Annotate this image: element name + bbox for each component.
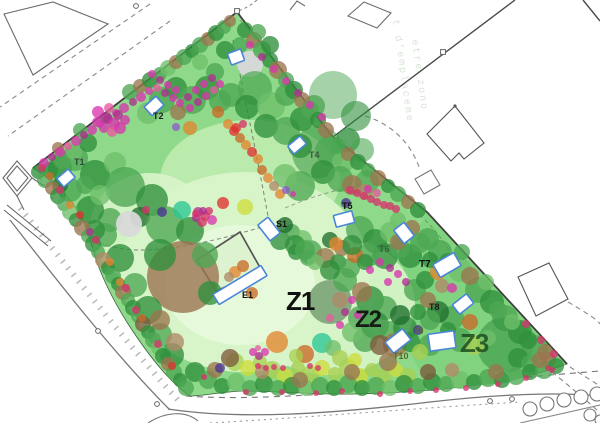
accent-dot	[38, 164, 46, 172]
accent-dot	[192, 210, 200, 218]
house-east-outline	[427, 106, 484, 161]
accent-dot	[210, 86, 218, 94]
accent-dot	[145, 87, 153, 95]
accent-dot	[394, 270, 402, 278]
tree-canopy	[192, 242, 218, 268]
shrub	[320, 260, 340, 280]
accent-dot	[326, 314, 334, 322]
shrub	[445, 363, 459, 377]
shrub	[90, 185, 110, 205]
shrub	[224, 272, 234, 282]
accent-dot	[306, 101, 314, 109]
accent-dot	[255, 345, 261, 351]
right-side-dashed	[568, 302, 600, 324]
accent-dot	[282, 186, 290, 194]
accent-dot	[313, 390, 319, 396]
accent-dot	[153, 84, 161, 92]
accent-dot	[104, 103, 114, 113]
accent-dot	[239, 120, 247, 128]
accent-dot	[549, 367, 555, 373]
tree-label-T1: T1	[74, 157, 85, 167]
accent-dot	[294, 89, 302, 97]
building-nw-outline	[4, 2, 108, 75]
accent-dot	[76, 211, 84, 219]
shrub	[212, 106, 224, 118]
accent-dot	[257, 165, 267, 175]
accent-dot	[200, 80, 208, 88]
accent-dot	[154, 340, 162, 348]
accent-dot	[66, 201, 74, 209]
accent-dot	[129, 98, 137, 106]
accent-dot	[55, 147, 65, 157]
accent-dot	[161, 89, 169, 97]
accent-dot	[263, 173, 273, 183]
accent-dot	[138, 314, 146, 322]
accent-dot	[169, 94, 177, 102]
accent-dot	[186, 104, 194, 112]
survey-node	[155, 402, 160, 407]
shrub	[221, 349, 239, 367]
tree-label-T9: T9	[413, 326, 424, 336]
accent-dot	[364, 185, 372, 193]
tree-label-E1: E1	[242, 290, 253, 300]
accent-dot	[360, 192, 368, 200]
shed-east-outline	[415, 170, 440, 194]
accent-dot	[366, 266, 374, 274]
accent-dot	[339, 388, 345, 394]
accent-dot	[282, 77, 290, 85]
tree-label-T10: T10	[393, 351, 409, 361]
accent-dot	[261, 348, 269, 356]
shrub	[166, 333, 184, 351]
zone-label-Z1: Z1	[286, 286, 315, 316]
accent-dot	[71, 136, 81, 146]
accent-dot	[142, 206, 150, 214]
accent-dot	[315, 365, 321, 371]
accent-dot	[172, 86, 180, 94]
shrub	[261, 36, 279, 54]
accent-dot	[201, 374, 207, 380]
road-se-dashed-1	[570, 367, 600, 386]
shrub	[329, 237, 343, 251]
road-west-double-2	[7, 205, 51, 241]
shrub	[488, 364, 504, 380]
accent-dot	[172, 123, 180, 131]
shrub	[390, 305, 410, 325]
house-right-outline	[518, 263, 568, 316]
accent-dot	[348, 296, 356, 304]
accent-dot	[132, 306, 140, 314]
accent-dot	[246, 41, 254, 49]
scan-watermark: t d'emplaceme etre zono	[389, 19, 429, 124]
shrub	[237, 260, 249, 272]
accent-dot	[92, 117, 102, 127]
landscape-plan-canvas: t d'emplaceme etre zono	[0, 0, 600, 423]
tree-label-T6: T6	[379, 244, 390, 254]
shrub	[435, 279, 449, 293]
accent-dot	[373, 198, 381, 206]
shrub	[412, 344, 428, 360]
shrub	[342, 235, 362, 255]
accent-dot	[270, 65, 278, 73]
tree-label-T2: T2	[153, 111, 164, 121]
accent-dot	[346, 186, 354, 194]
shrub	[237, 199, 253, 215]
tree-canopy	[144, 239, 176, 271]
accent-dot	[290, 191, 296, 197]
accent-dot	[495, 381, 501, 387]
tree-label-S1: S1	[276, 219, 287, 229]
shrub	[344, 364, 360, 380]
accent-dot	[258, 53, 266, 61]
shrub	[332, 350, 348, 366]
accent-dot	[447, 283, 457, 293]
accent-dot	[341, 308, 349, 316]
shrub	[250, 24, 266, 40]
survey-node	[235, 9, 240, 14]
accent-dot	[353, 189, 361, 197]
shrub	[292, 372, 308, 388]
building-top-outline	[348, 2, 391, 28]
shrub	[507, 367, 525, 385]
shrub	[295, 240, 315, 260]
tree-canopy	[235, 95, 259, 119]
accent-dot	[402, 278, 410, 286]
accent-dot	[279, 389, 285, 395]
survey-node	[441, 50, 446, 55]
shrub	[173, 201, 191, 219]
accent-dot	[168, 362, 176, 370]
accent-dot	[194, 98, 202, 106]
accent-dot	[217, 197, 229, 209]
survey-node	[134, 4, 139, 9]
parcel-line-corner	[583, 0, 600, 21]
accent-dot	[271, 364, 277, 370]
shrub	[332, 292, 348, 308]
accent-dot	[148, 70, 156, 78]
shrub	[478, 274, 494, 290]
accent-dot	[56, 186, 64, 194]
accent-dot	[433, 387, 439, 393]
shrub	[178, 380, 194, 396]
accent-dot	[164, 81, 172, 89]
accent-dot	[120, 115, 130, 125]
shrub	[420, 364, 436, 380]
accent-dot	[376, 258, 384, 266]
house-east-node	[453, 104, 456, 107]
shrub	[150, 310, 170, 330]
survey-node	[96, 329, 101, 334]
accent-dot	[407, 388, 413, 394]
accent-dot	[122, 284, 130, 292]
shrub	[289, 349, 303, 363]
tree-label-T5: T5	[342, 201, 353, 211]
shrub	[489, 301, 507, 319]
accent-dot	[207, 215, 217, 225]
accent-dot	[392, 205, 400, 213]
accent-dot	[263, 365, 269, 371]
accent-dot	[202, 92, 210, 100]
building-top-small	[290, 1, 305, 10]
accent-dot	[463, 385, 469, 391]
accent-dot	[46, 172, 54, 180]
garden-structure	[428, 331, 456, 351]
accent-dot	[522, 320, 530, 328]
accent-dot	[373, 189, 381, 197]
accent-dot	[318, 113, 326, 121]
accent-dot	[523, 375, 529, 381]
accent-dot	[86, 228, 94, 236]
site-plan-svg: t d'emplaceme etre zono	[0, 0, 600, 423]
accent-dot	[208, 74, 216, 82]
accent-dot	[176, 99, 184, 107]
accent-dot	[64, 142, 72, 150]
accent-dot	[269, 181, 279, 191]
accent-dot	[192, 86, 200, 94]
accent-dot	[136, 92, 146, 102]
tree-canopy	[116, 211, 142, 237]
shrub	[532, 352, 548, 368]
accent-dot	[156, 76, 164, 84]
bushes-se-outlines	[523, 387, 600, 423]
accent-dot	[80, 131, 88, 139]
zone-label-Z3: Z3	[460, 328, 489, 358]
neighbour-garden-dashed	[365, 116, 420, 170]
shrub	[192, 54, 208, 70]
zone-label-Z2: Z2	[355, 306, 382, 333]
shrub	[504, 314, 520, 330]
accent-dot	[384, 278, 392, 286]
accent-dot	[106, 258, 114, 266]
road-nw-dashed-3	[238, 0, 257, 11]
accent-dot	[199, 207, 207, 215]
shrub	[318, 122, 334, 138]
accent-dot	[243, 389, 249, 395]
shrub	[266, 331, 288, 353]
accent-dot	[184, 93, 192, 101]
accent-dot	[307, 363, 313, 369]
shrub	[461, 267, 479, 285]
tree-label-T7: T7	[419, 259, 431, 270]
accent-dot	[537, 336, 545, 344]
tree-canopy	[341, 101, 371, 131]
accent-dot	[92, 236, 100, 244]
tree-label-T4: T4	[309, 150, 320, 160]
survey-node	[510, 397, 515, 402]
accent-dot	[215, 363, 225, 373]
accent-dot	[116, 278, 124, 286]
accent-dot	[48, 153, 56, 161]
tree-label-T8: T8	[429, 302, 440, 312]
accent-dot	[336, 321, 344, 329]
shrub	[224, 15, 236, 27]
watermark-line-1: t d'emplaceme	[389, 19, 415, 124]
accent-dot	[157, 207, 167, 217]
accent-dot	[253, 154, 263, 164]
shrub	[183, 121, 197, 135]
accent-dot	[386, 264, 394, 272]
shrub	[519, 331, 537, 349]
driveway-curve	[148, 414, 198, 423]
accent-dot	[550, 350, 558, 358]
accent-dot	[255, 363, 261, 369]
road-south-dotted	[210, 402, 520, 423]
accent-dot	[280, 365, 286, 371]
survey-node	[488, 399, 493, 404]
accent-dot	[216, 80, 224, 88]
shrub	[410, 202, 426, 218]
accent-dot	[377, 391, 383, 397]
